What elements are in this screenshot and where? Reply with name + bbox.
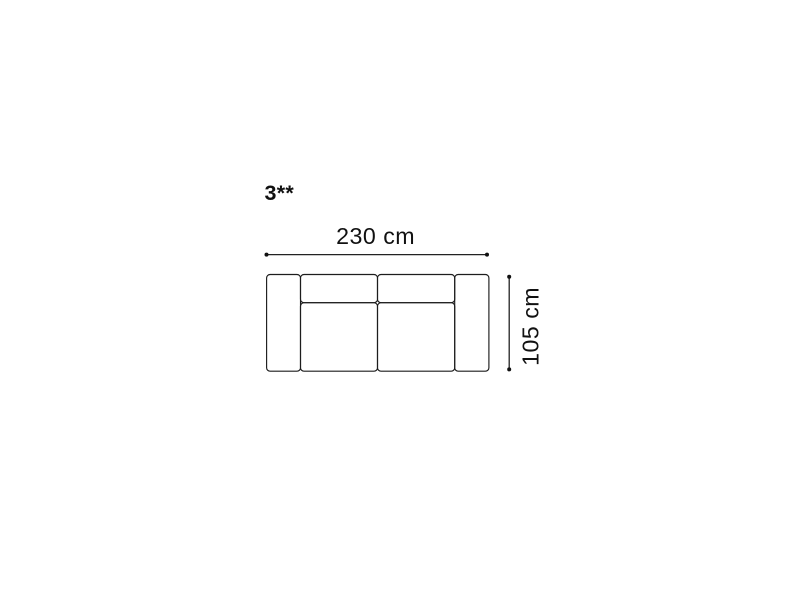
svg-text:105 cm: 105 cm <box>517 287 543 366</box>
svg-text:3**: 3** <box>265 181 295 205</box>
svg-text:230 cm: 230 cm <box>336 223 415 249</box>
